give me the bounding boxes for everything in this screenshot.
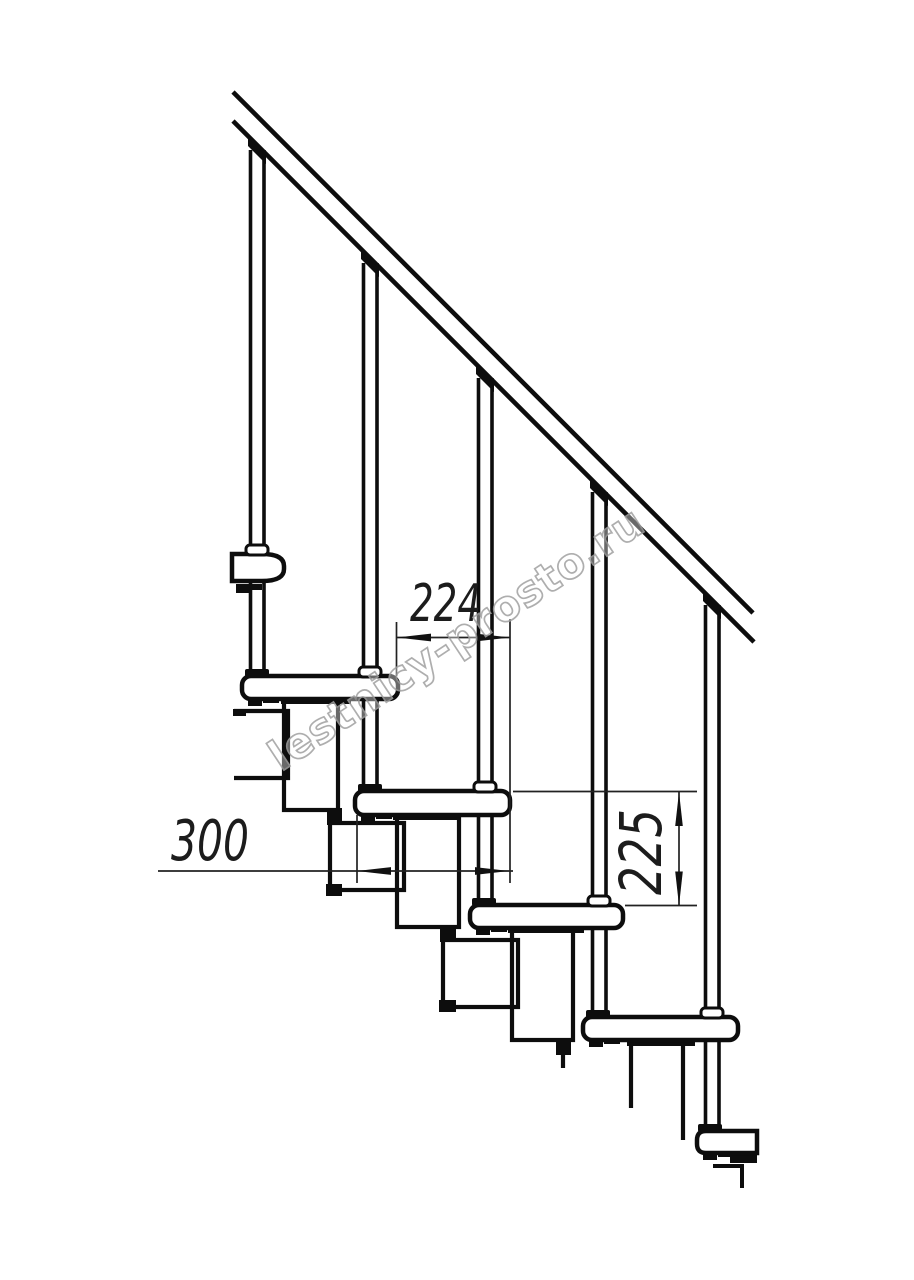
tread-1-end-view xyxy=(232,554,284,581)
arrow-down-icon xyxy=(675,872,683,906)
joint-clamp-icon xyxy=(440,925,456,942)
drawing-canvas: 224 300 225 lestnicy-prosto.ru xyxy=(0,0,914,1280)
connector-module-3 xyxy=(443,940,518,1007)
dimension-depth-label: 300 xyxy=(171,809,249,874)
baluster-anchor-icon xyxy=(698,1124,722,1132)
arrow-up-icon xyxy=(675,792,683,826)
staircase-drawing: 224 300 225 lestnicy-prosto.ru xyxy=(0,0,914,1280)
tread-5 xyxy=(583,1017,738,1040)
joint-clamp-icon xyxy=(326,884,342,896)
dimension-labels: 224 300 225 xyxy=(171,574,675,895)
baluster-clamp-icon xyxy=(474,782,496,792)
baluster-clamp-icon xyxy=(588,896,610,906)
joint-clamp-icon xyxy=(439,1000,456,1012)
riser-module-4 xyxy=(512,930,573,1040)
arrow-left-icon xyxy=(357,867,391,875)
riser-module-5-cut xyxy=(631,1046,683,1140)
connector-module-2 xyxy=(330,823,404,890)
module-chain xyxy=(234,701,742,1188)
baluster-anchor-icon xyxy=(472,898,496,906)
baluster-anchor-icon xyxy=(586,1010,610,1018)
bracket-icon xyxy=(236,584,249,593)
lower-module-cut-line xyxy=(713,1166,742,1188)
joint-clamp-icon xyxy=(233,709,246,716)
bracket-icon xyxy=(250,584,262,590)
baluster-anchor-icon xyxy=(358,784,382,792)
baluster-5 xyxy=(706,605,720,1132)
tread-4 xyxy=(470,905,623,928)
tread-6-cut xyxy=(697,1131,757,1153)
dimension-rise-label: 225 xyxy=(607,809,675,895)
baluster-1 xyxy=(251,150,265,677)
baluster-clamp-icon xyxy=(246,545,268,555)
joint-clamp-icon xyxy=(556,1038,571,1055)
baluster-clamp-icon xyxy=(701,1008,723,1018)
baluster-anchor-icon xyxy=(245,669,269,677)
tread-3 xyxy=(355,791,510,815)
joint-clamp-icon xyxy=(327,808,342,825)
watermark-text: lestnicy-prosto.ru xyxy=(259,497,653,781)
